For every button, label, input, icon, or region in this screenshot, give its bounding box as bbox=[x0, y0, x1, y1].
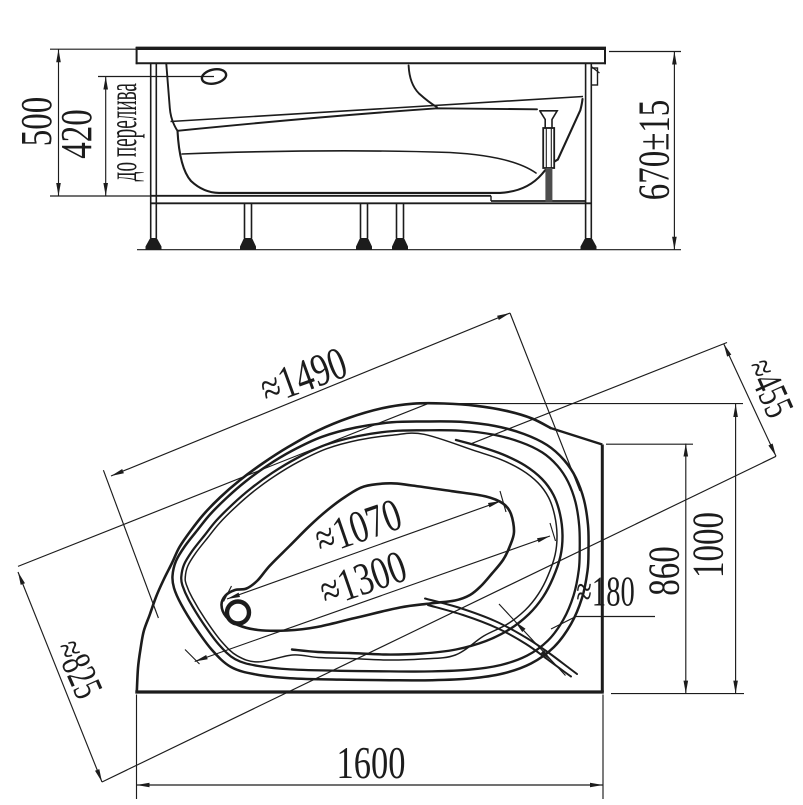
svg-text:860: 860 bbox=[640, 546, 689, 595]
svg-text:420: 420 bbox=[53, 109, 102, 158]
svg-text:1600: 1600 bbox=[337, 737, 406, 788]
svg-text:≈180: ≈180 bbox=[576, 568, 635, 615]
svg-text:1000: 1000 bbox=[684, 512, 733, 578]
svg-text:до перелива: до перелива bbox=[101, 83, 146, 181]
svg-text:670±15: 670±15 bbox=[630, 100, 679, 201]
